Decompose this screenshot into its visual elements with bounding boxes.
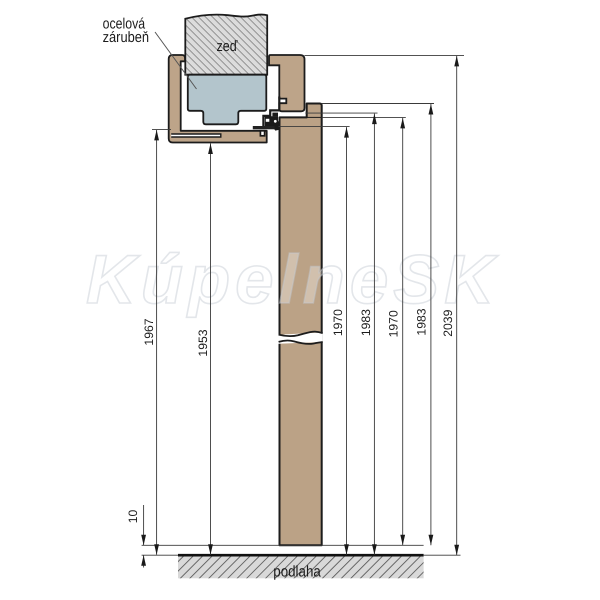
svg-text:1983: 1983	[414, 308, 428, 335]
svg-text:1967: 1967	[142, 318, 156, 345]
svg-text:1953: 1953	[196, 329, 210, 356]
svg-text:2039: 2039	[441, 309, 455, 336]
svg-text:podlaha: podlaha	[273, 563, 321, 580]
svg-text:1970: 1970	[331, 309, 345, 336]
svg-text:zeď: zeď	[217, 38, 239, 55]
svg-text:10: 10	[126, 510, 140, 524]
svg-text:KúpelneSK: KúpelneSK	[86, 241, 499, 318]
svg-text:1970: 1970	[387, 310, 401, 337]
svg-text:zárubeň: zárubeň	[103, 29, 150, 46]
svg-text:1983: 1983	[359, 309, 373, 336]
